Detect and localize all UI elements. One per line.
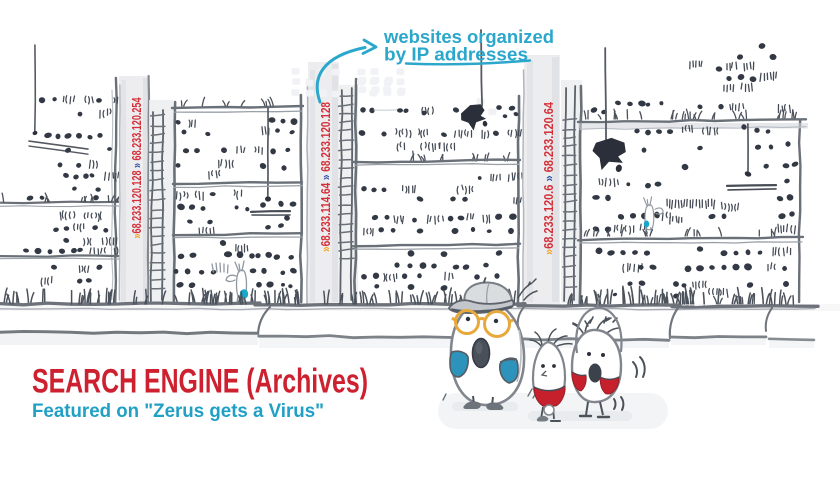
svg-text:SEARCH ENGINE (Archives): SEARCH ENGINE (Archives) <box>32 363 368 401</box>
svg-text:»68.233.114.64 » 68.233.120.12: »68.233.114.64 » 68.233.120.128 <box>318 102 333 252</box>
svg-text:»68.233.120.128 » 68.233.120.2: »68.233.120.128 » 68.233.120.254 <box>129 97 144 239</box>
svg-text:Featured on "Zerus gets a Viru: Featured on "Zerus gets a Virus" <box>32 400 324 422</box>
svg-text:»68.233.120.6 » 68.233.120.64: »68.233.120.6 » 68.233.120.64 <box>541 101 556 255</box>
